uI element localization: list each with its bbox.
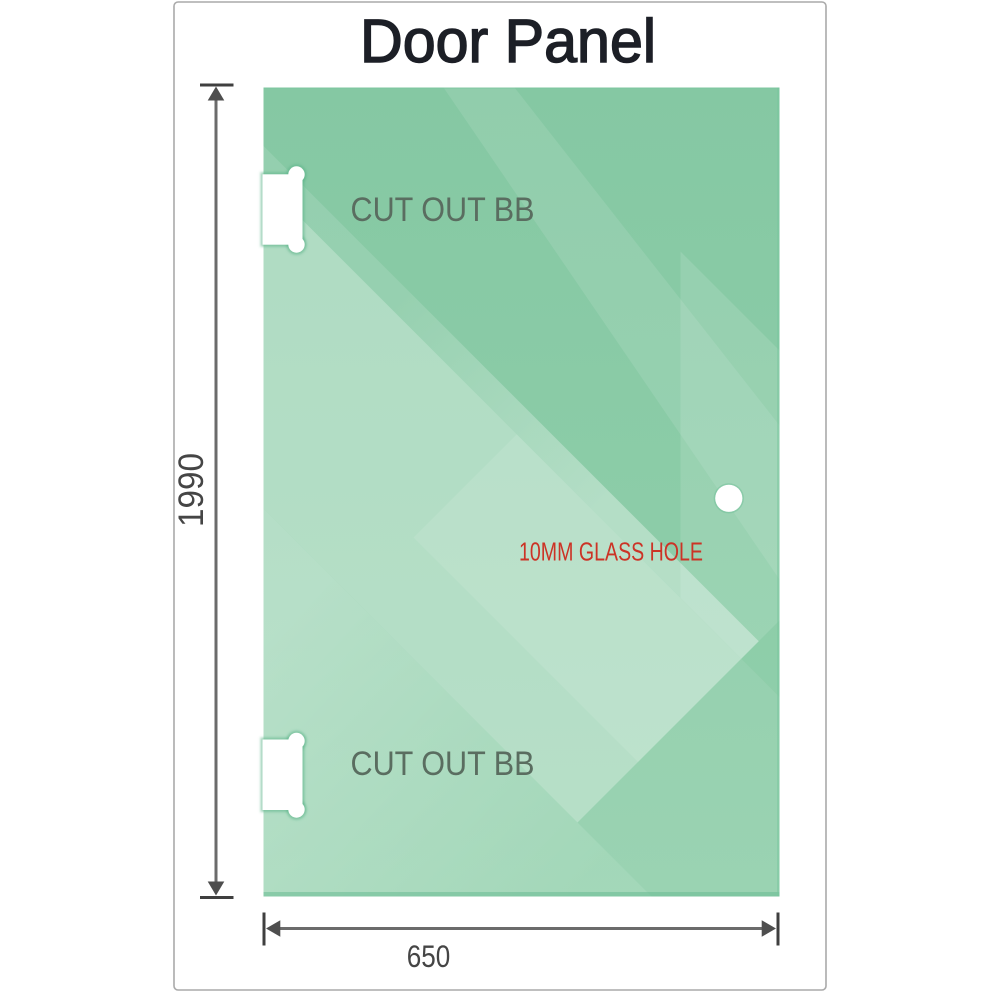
svg-text:10MM GLASS HOLE: 10MM GLASS HOLE <box>519 536 703 566</box>
svg-text:Door Panel: Door Panel <box>360 7 656 75</box>
svg-text:1990: 1990 <box>172 453 211 527</box>
svg-text:CUT OUT BB: CUT OUT BB <box>351 745 535 783</box>
svg-text:650: 650 <box>407 938 451 974</box>
svg-text:CUT OUT BB: CUT OUT BB <box>351 191 535 229</box>
